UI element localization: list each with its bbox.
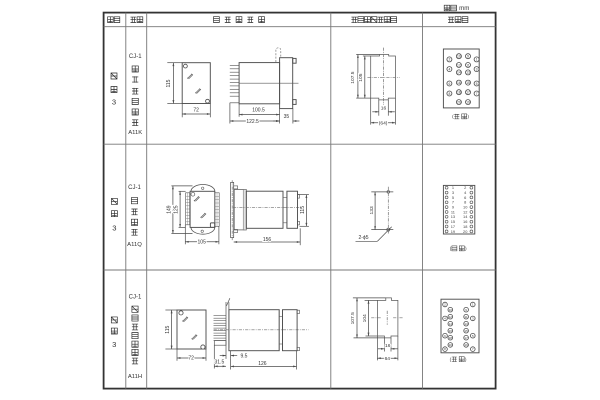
svg-text:104: 104 xyxy=(362,314,368,322)
svg-text:105: 105 xyxy=(198,240,207,246)
svg-text:A11Q: A11Q xyxy=(127,242,142,248)
svg-text:19: 19 xyxy=(466,100,470,104)
svg-text:: mm: : mm xyxy=(456,5,470,12)
svg-text:107.5: 107.5 xyxy=(350,71,356,84)
svg-text:CJ-1: CJ-1 xyxy=(129,294,142,300)
svg-text:16: 16 xyxy=(457,81,461,85)
svg-text:13: 13 xyxy=(464,322,468,326)
svg-text:3: 3 xyxy=(476,67,478,71)
svg-text:17: 17 xyxy=(464,336,468,340)
svg-text:72: 72 xyxy=(193,108,199,114)
svg-text:A11K: A11K xyxy=(128,130,142,136)
svg-text:4: 4 xyxy=(448,67,450,71)
svg-text:9: 9 xyxy=(467,55,469,59)
svg-text:115: 115 xyxy=(166,79,172,87)
svg-text:64: 64 xyxy=(385,356,391,362)
svg-text:126: 126 xyxy=(258,361,267,367)
svg-text:(64): (64) xyxy=(379,120,388,126)
svg-text:125: 125 xyxy=(174,205,180,214)
svg-text:10: 10 xyxy=(457,55,461,59)
svg-text:31.5: 31.5 xyxy=(215,359,225,365)
svg-text:3: 3 xyxy=(112,98,116,107)
svg-text:156: 156 xyxy=(263,237,272,243)
svg-text:CJ-1: CJ-1 xyxy=(128,185,141,191)
svg-text:12: 12 xyxy=(449,315,453,319)
svg-text:19: 19 xyxy=(451,229,455,234)
svg-text:14: 14 xyxy=(449,322,453,326)
svg-text:13: 13 xyxy=(466,71,470,75)
svg-text:122.5: 122.5 xyxy=(246,119,259,125)
svg-text:3: 3 xyxy=(112,340,116,349)
svg-text:11: 11 xyxy=(465,315,468,319)
svg-text:11: 11 xyxy=(466,63,470,67)
svg-text:A11H: A11H xyxy=(128,374,142,380)
svg-text:17: 17 xyxy=(466,91,470,95)
svg-text:10: 10 xyxy=(449,308,453,312)
svg-text:35: 35 xyxy=(284,114,290,120)
svg-text:2-ϕ5: 2-ϕ5 xyxy=(358,235,368,241)
svg-text:115: 115 xyxy=(300,206,306,214)
svg-text:105: 105 xyxy=(358,73,364,81)
svg-text:72: 72 xyxy=(188,356,194,362)
svg-text:7: 7 xyxy=(476,92,478,96)
svg-text:19: 19 xyxy=(464,343,468,347)
svg-text:100.5: 100.5 xyxy=(252,107,265,113)
svg-text:107.5: 107.5 xyxy=(350,312,356,325)
svg-text:8: 8 xyxy=(448,92,450,96)
svg-text:149: 149 xyxy=(167,205,173,214)
svg-text:20: 20 xyxy=(457,100,461,104)
svg-text:16: 16 xyxy=(381,106,387,112)
svg-text:9.5: 9.5 xyxy=(241,354,248,360)
svg-text:115: 115 xyxy=(165,326,171,334)
svg-text:6: 6 xyxy=(448,82,450,86)
svg-text:20: 20 xyxy=(449,343,453,347)
svg-text:18: 18 xyxy=(449,336,453,340)
svg-text:16: 16 xyxy=(449,329,453,333)
svg-text:2: 2 xyxy=(448,58,450,62)
svg-text:15: 15 xyxy=(466,81,470,85)
svg-text:CJ-1: CJ-1 xyxy=(129,54,142,60)
svg-text:5: 5 xyxy=(476,82,478,86)
svg-text:14: 14 xyxy=(457,71,461,75)
svg-text:3: 3 xyxy=(112,223,116,232)
svg-text:133: 133 xyxy=(369,206,375,214)
svg-text:12: 12 xyxy=(457,63,461,67)
svg-text:18: 18 xyxy=(457,91,461,95)
svg-text:15: 15 xyxy=(464,329,468,333)
svg-text:16: 16 xyxy=(385,343,391,349)
svg-text:1: 1 xyxy=(476,58,478,62)
